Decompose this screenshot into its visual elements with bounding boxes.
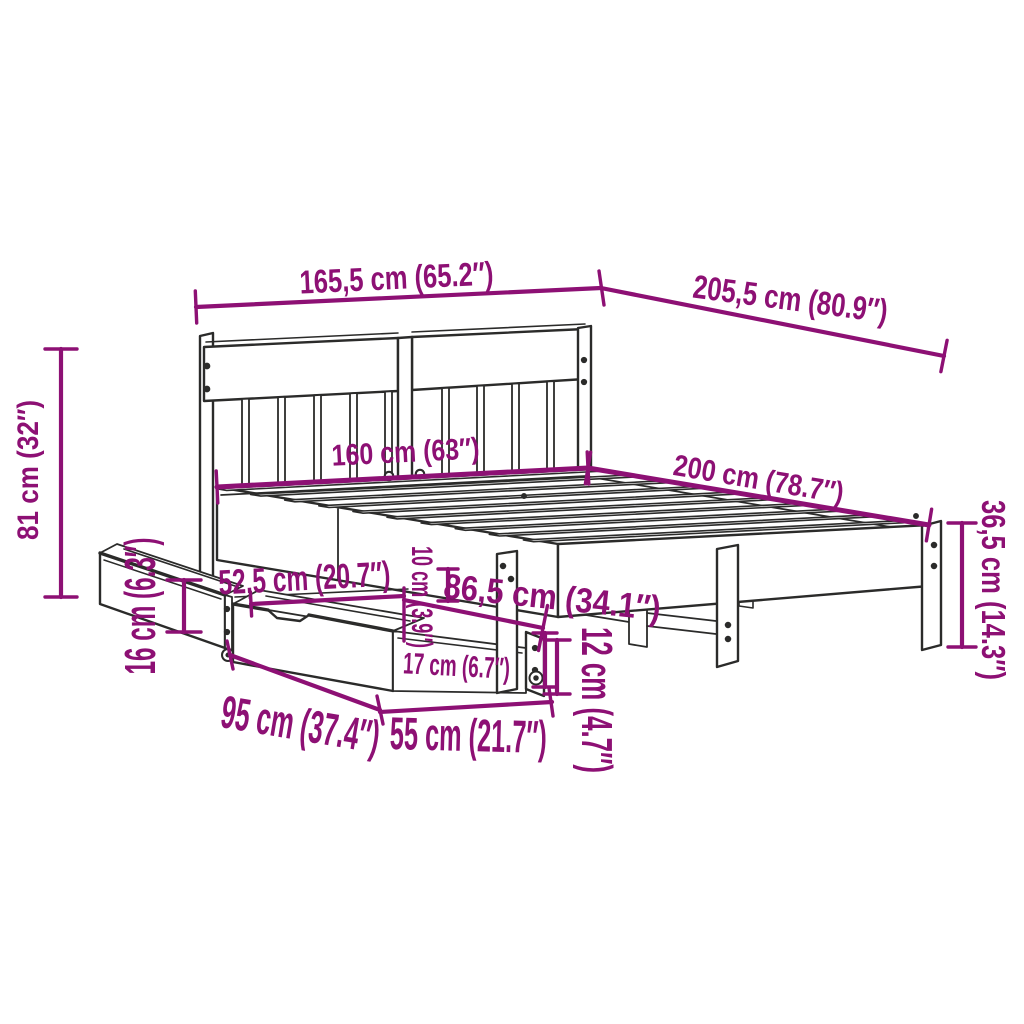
svg-text:81 cm (32″): 81 cm (32″) xyxy=(12,400,45,540)
svg-text:12 cm (4.7″): 12 cm (4.7″) xyxy=(572,627,621,773)
svg-text:36,5 cm (14.3″): 36,5 cm (14.3″) xyxy=(975,500,1012,680)
svg-text:10 cm (3.9″): 10 cm (3.9″) xyxy=(405,546,438,648)
svg-text:17 cm (6.7″): 17 cm (6.7″) xyxy=(402,647,511,686)
svg-text:55 cm (21.7″): 55 cm (21.7″) xyxy=(389,707,547,763)
svg-text:16 cm (6.3″): 16 cm (6.3″) xyxy=(116,538,165,675)
